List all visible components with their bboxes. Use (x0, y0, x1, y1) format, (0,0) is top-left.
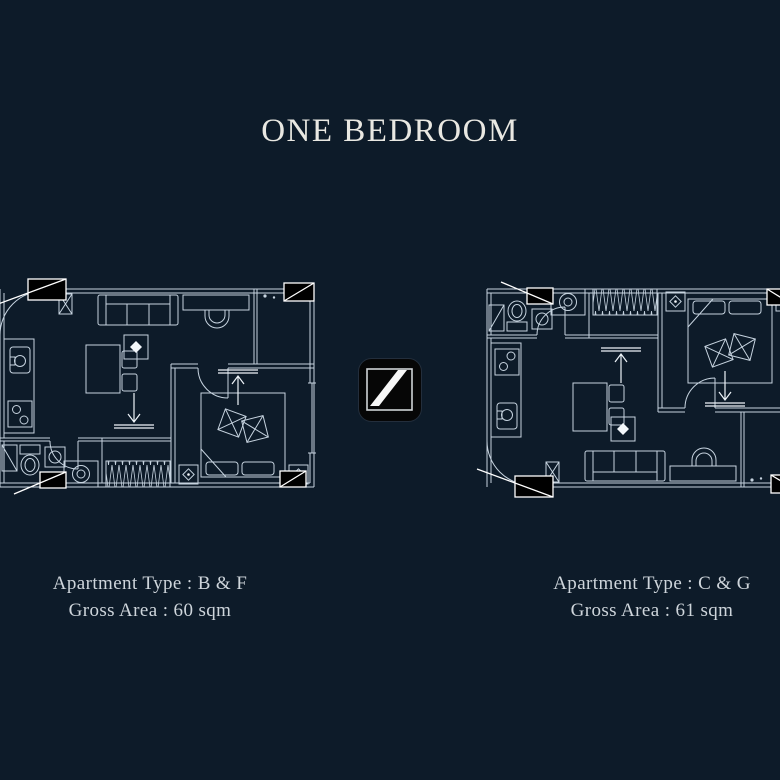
diagonal-slash-icon (358, 358, 422, 422)
floorplan-left-drawing (0, 283, 331, 493)
page-title: ONE BEDROOM (0, 113, 780, 150)
apartment-type-label: Apartment Type : C & G (512, 570, 780, 597)
brand-logo (358, 358, 422, 422)
brochure-page: ONE BEDROOM Apartment Type : B & F Gross… (0, 0, 780, 780)
caption-right: Apartment Type : C & G Gross Area : 61 s… (512, 570, 780, 624)
gross-area-label: Gross Area : 61 sqm (512, 597, 780, 624)
apartment-type-label: Apartment Type : B & F (10, 570, 290, 597)
gross-area-label: Gross Area : 60 sqm (10, 597, 290, 624)
caption-left: Apartment Type : B & F Gross Area : 60 s… (10, 570, 290, 624)
floorplan-right-drawing (473, 283, 780, 493)
